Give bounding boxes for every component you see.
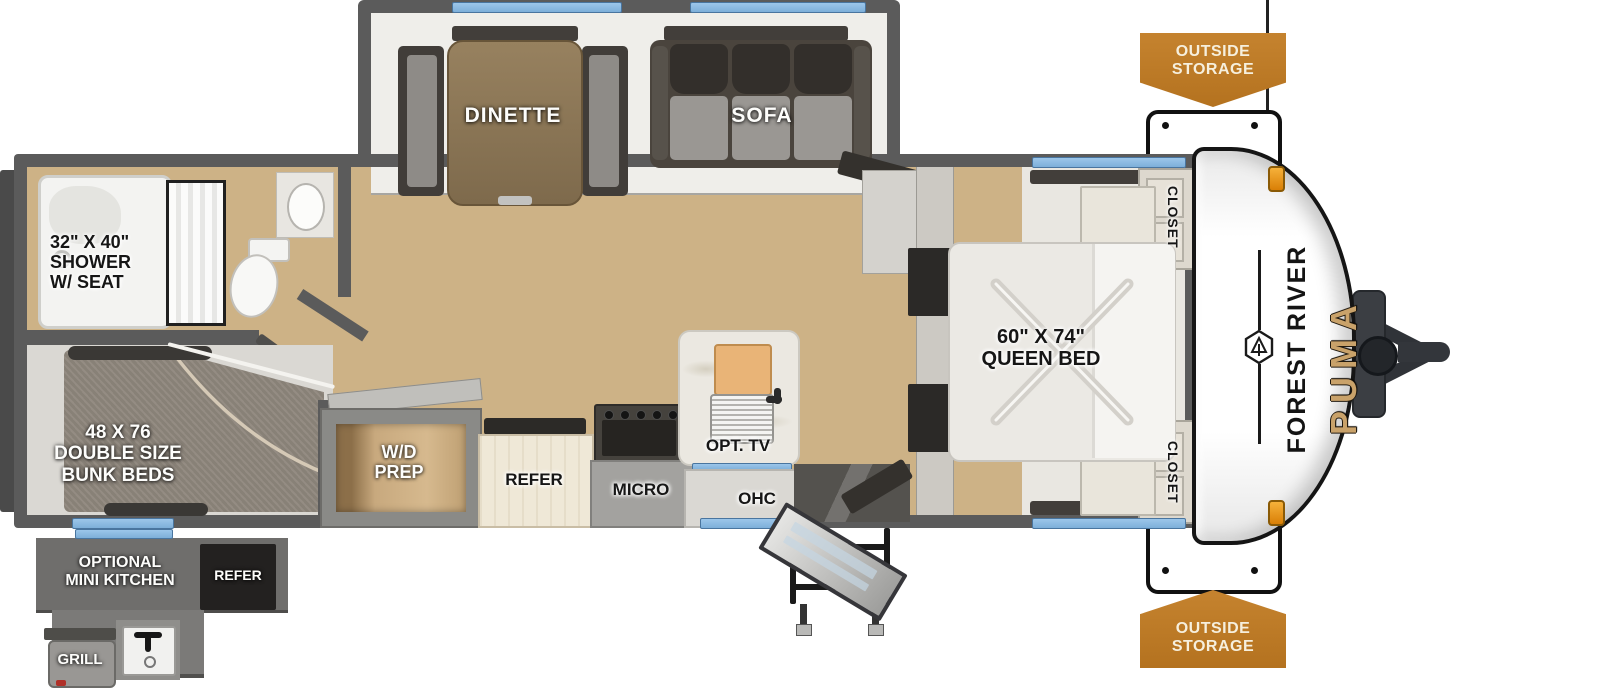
faucet-icon [145, 632, 151, 652]
window-strip [452, 2, 622, 13]
outside-storage-top-label: OUTSIDE STORAGE [1140, 43, 1286, 79]
sink-drain [144, 656, 156, 668]
door-latch-dot [1251, 122, 1258, 129]
outside-storage-banner-top: OUTSIDE STORAGE [1140, 33, 1286, 107]
mattress-stitch-x [950, 244, 1174, 460]
stove-knob [652, 410, 662, 420]
bathroom-wall [27, 330, 259, 345]
kitchen-island [678, 330, 800, 466]
stove-knob [668, 410, 678, 420]
door-latch-dot [1251, 567, 1258, 574]
window-strip [1032, 518, 1186, 529]
shower [38, 175, 172, 329]
dinette-valance [452, 26, 578, 41]
window-strip [690, 2, 866, 13]
stove-knob [636, 410, 646, 420]
floorplan-canvas: DINETTE SOFA 32" X 40" SHOWER W/ SEAT 48… [0, 0, 1600, 688]
refrigerator [478, 434, 594, 528]
sofa-seat-cushion [670, 96, 728, 160]
wd-prep-cabinet [320, 408, 482, 528]
stove-knob [604, 410, 614, 420]
bunk-bolster [104, 503, 208, 516]
nightstand [1080, 186, 1156, 246]
step-foot [868, 624, 884, 636]
door-latch-dot [1162, 567, 1169, 574]
outside-storage-banner-bottom: OUTSIDE STORAGE [1140, 590, 1286, 668]
shower-seat [49, 186, 121, 244]
window-strip [72, 518, 174, 529]
microwave-cabinet [590, 460, 696, 528]
grill-shelf [44, 628, 116, 640]
wd-prep-interior [336, 424, 466, 512]
marker-light [1268, 166, 1285, 192]
window-strip [1032, 157, 1186, 168]
sofa-valance [664, 26, 848, 41]
shower-door [166, 180, 226, 326]
refrigerator-top [484, 418, 586, 435]
hitch-jack-hub [1358, 336, 1398, 376]
dinette-bench-left [398, 46, 444, 196]
stove [594, 404, 688, 464]
sofa-seat-cushion [732, 96, 790, 160]
dinette-bench-right [582, 46, 628, 196]
sofa-back-cushion [670, 44, 728, 94]
dinette-table [447, 40, 583, 206]
bench-cushion [589, 55, 619, 187]
outdoor-sink-unit [116, 620, 180, 680]
tail-light [56, 680, 66, 686]
cutting-board [714, 344, 772, 396]
step-leg [800, 604, 807, 626]
marker-light [1268, 500, 1285, 526]
forest-river-logo [1244, 330, 1274, 364]
bathroom-vanity [276, 172, 334, 238]
table-leg-plate [498, 196, 532, 205]
hall-wall [338, 167, 351, 297]
nightstand [1080, 456, 1156, 516]
sofa-back-cushion [732, 44, 790, 94]
logo-accent-line [1258, 364, 1261, 444]
sofa-arm [854, 46, 870, 160]
sofa-arm [652, 46, 668, 160]
door-latch-dot [1162, 122, 1169, 129]
sofa-back-cushion [794, 44, 852, 94]
bathroom-sink [287, 183, 325, 231]
outdoor-refrigerator [200, 544, 276, 610]
hitch-coupler [1398, 342, 1450, 362]
stove-knob [620, 410, 630, 420]
cooktop [602, 420, 676, 456]
shower-drain [53, 250, 71, 268]
kitchen-sink [710, 394, 774, 444]
queen-bed [948, 242, 1176, 462]
faucet-icon [774, 388, 781, 404]
bench-cushion [407, 55, 437, 187]
front-cap [1192, 147, 1356, 545]
outside-storage-bottom-label: OUTSIDE STORAGE [1140, 620, 1286, 656]
logo-accent-line [1258, 250, 1261, 330]
step-foot [796, 624, 812, 636]
window-strip [75, 529, 173, 539]
